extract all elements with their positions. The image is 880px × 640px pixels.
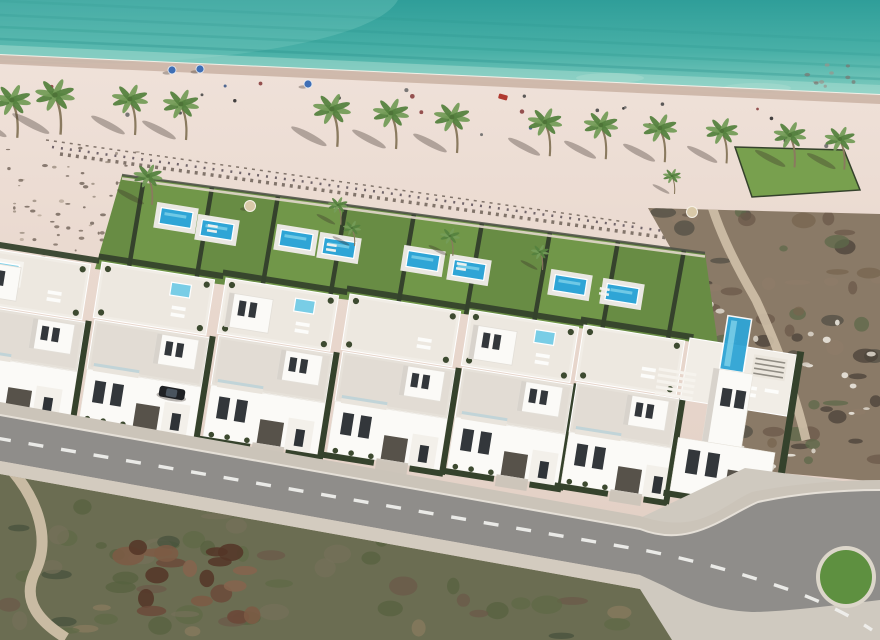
beach-person xyxy=(480,133,483,136)
scrub-blob xyxy=(96,542,107,549)
scrub-blob xyxy=(511,597,530,609)
scrub-blob xyxy=(315,558,336,577)
palm-crown-center xyxy=(450,115,455,120)
rooftop-jacuzzi xyxy=(294,298,316,314)
scrub-blob xyxy=(486,602,508,619)
palm-crown-center xyxy=(128,97,133,102)
beach-person xyxy=(770,117,774,121)
terrain-blob xyxy=(848,281,857,294)
beach-person xyxy=(520,109,524,113)
white-rock xyxy=(811,449,815,454)
ruin-patch xyxy=(199,570,214,587)
terrain-blob xyxy=(779,245,787,251)
dune-speckle xyxy=(7,167,10,170)
scrub-blob xyxy=(469,610,488,618)
ruin-patch xyxy=(137,606,167,616)
beach-person xyxy=(410,94,415,99)
scrub-blob xyxy=(607,606,631,619)
shore-pebble xyxy=(819,80,824,84)
dune-speckle xyxy=(100,231,105,235)
terrain-blob xyxy=(805,439,820,449)
scrub-blob xyxy=(604,618,630,630)
palm-crown-center xyxy=(389,111,394,116)
scrub-blob xyxy=(531,596,562,614)
palm-crown-center xyxy=(720,129,724,133)
white-rock xyxy=(835,320,840,326)
palm-crown-center xyxy=(539,251,541,253)
terrain-blob xyxy=(825,235,850,248)
beach-person xyxy=(404,88,408,92)
scrub-blob xyxy=(389,576,417,595)
dune-speckle xyxy=(24,206,29,208)
beach-person xyxy=(419,110,423,114)
garage-door xyxy=(615,466,642,493)
dune-speckle xyxy=(30,209,35,212)
dune-speckle xyxy=(79,230,84,232)
ruin-patch xyxy=(224,580,247,592)
white-rock xyxy=(850,384,857,389)
palm-crown-center xyxy=(658,126,663,131)
dune-speckle xyxy=(116,181,119,184)
dune-speckle xyxy=(92,196,95,198)
ruin-patch xyxy=(233,566,257,575)
garage-door xyxy=(501,451,528,478)
terrain-blob xyxy=(710,258,731,264)
scrub-blob xyxy=(257,550,285,560)
aerial-render-photo xyxy=(0,0,880,640)
beach-person xyxy=(259,82,263,86)
dune-speckle xyxy=(91,183,94,185)
beach-person xyxy=(596,109,600,113)
terrain-blob xyxy=(674,220,695,235)
beach-person xyxy=(233,99,236,102)
scrub-blob xyxy=(362,552,381,565)
dune-speckle xyxy=(75,249,77,251)
dune-speckle xyxy=(37,214,41,216)
palm-crown-center xyxy=(337,204,340,207)
scrub-blob xyxy=(112,572,138,585)
dune-speckle xyxy=(109,195,113,197)
dune-speckle xyxy=(83,185,88,188)
beach-umbrella xyxy=(196,65,204,73)
ruin-patch xyxy=(191,596,213,607)
ruin-patch xyxy=(154,545,178,562)
dune-speckle xyxy=(98,232,100,235)
scrub-blob xyxy=(171,611,199,617)
scrub-blob xyxy=(48,525,69,544)
terrain-blob xyxy=(848,439,862,444)
garden-parasol xyxy=(687,207,698,218)
beach-person xyxy=(756,108,759,111)
dune-speckle xyxy=(18,185,20,186)
white-rock xyxy=(867,352,876,357)
dune-speckle xyxy=(78,147,82,150)
dune-speckle xyxy=(89,225,92,227)
terrain-blob xyxy=(820,406,833,412)
beach-person xyxy=(125,113,129,117)
beach-person xyxy=(523,94,526,97)
dune-speckle xyxy=(6,149,10,150)
dune-speckle xyxy=(57,234,60,236)
palm-crown-center xyxy=(146,174,150,178)
dune-speckle xyxy=(100,213,106,216)
scrub-blob xyxy=(185,626,201,636)
dune-speckle xyxy=(32,200,36,203)
dune-speckle xyxy=(20,232,25,234)
palm-crown-center xyxy=(543,120,548,125)
dune-speckle xyxy=(50,221,55,223)
scrub-blob xyxy=(265,579,293,587)
dune-speckle xyxy=(59,199,64,203)
palm-crown-center xyxy=(351,227,353,229)
dune-speckle xyxy=(32,238,36,241)
ruin-patch xyxy=(138,589,154,608)
scrub-blob xyxy=(94,614,118,625)
scrub-blob xyxy=(226,518,247,533)
palm-crown-center xyxy=(671,175,673,177)
white-rock xyxy=(841,372,848,378)
dune-speckle xyxy=(135,151,140,153)
scrub-blob xyxy=(457,594,470,607)
terrain-blob xyxy=(792,333,803,341)
dune-speckle xyxy=(81,172,85,174)
white-rock xyxy=(823,337,831,343)
palm-crown-center xyxy=(329,106,334,111)
palm-crown-center xyxy=(599,123,604,128)
roundabout-island xyxy=(820,550,872,604)
white-rock xyxy=(802,362,810,366)
garage-door xyxy=(257,419,284,446)
palm-crown-center xyxy=(179,102,184,107)
ruin-patch xyxy=(183,560,197,577)
scene-canvas xyxy=(0,0,880,640)
terrain-blob xyxy=(738,212,756,226)
ruin-patch xyxy=(129,540,147,555)
terrain-blob xyxy=(821,315,844,326)
scrub-blob xyxy=(93,605,111,611)
scrub-blob xyxy=(378,601,403,617)
palm-crown-center xyxy=(9,97,14,102)
dune-speckle xyxy=(13,206,16,209)
shore-pebble xyxy=(824,85,827,88)
beach-person xyxy=(661,102,665,106)
dune-speckle xyxy=(52,166,57,169)
rooftop-jacuzzi xyxy=(170,282,192,298)
terrain-blob xyxy=(785,280,811,285)
scrub-blob xyxy=(447,578,459,595)
terrain-blob xyxy=(854,317,869,332)
dune-speckle xyxy=(13,203,16,205)
terrain-blob xyxy=(792,213,816,228)
dune-speckle xyxy=(18,179,23,182)
dune-speckle xyxy=(79,182,84,185)
shore-pebble xyxy=(829,71,833,74)
dune-speckle xyxy=(115,152,118,155)
palm-crown-center xyxy=(838,137,842,141)
white-rock xyxy=(863,407,870,410)
dune-speckle xyxy=(42,164,48,167)
terrain-blob xyxy=(826,269,848,275)
dune-speckle xyxy=(13,210,16,212)
scrub-blob xyxy=(148,617,171,635)
dune-speckle xyxy=(66,226,70,229)
scrub-blob xyxy=(549,633,575,639)
white-rock xyxy=(753,336,758,342)
beach-person xyxy=(201,93,204,96)
scrub-blob xyxy=(73,499,91,514)
shore-pebble xyxy=(845,76,850,79)
terrain-blob xyxy=(804,456,813,464)
terrain-blob xyxy=(650,207,676,218)
scrub-blob xyxy=(412,619,426,636)
terrain-blob xyxy=(822,211,834,225)
terrain-blob xyxy=(849,373,867,379)
dune-speckle xyxy=(56,213,61,216)
beach-umbrella xyxy=(168,66,176,74)
ruin-patch xyxy=(145,567,168,583)
rooftop-jacuzzi xyxy=(534,330,556,346)
terrain-blob xyxy=(767,438,777,448)
white-rock xyxy=(849,412,855,415)
terrain-blob xyxy=(823,400,848,405)
dune-speckle xyxy=(65,203,70,205)
scrub-blob xyxy=(42,560,62,574)
terrain-blob xyxy=(762,277,776,290)
terrain-blob xyxy=(808,400,819,409)
garden-parasol xyxy=(245,201,256,212)
dune-speckle xyxy=(67,166,70,168)
terrain-blob xyxy=(793,307,804,316)
white-rock xyxy=(808,332,814,337)
scrub-blob xyxy=(8,525,29,532)
dune-speckle xyxy=(79,237,85,240)
scrub-blob xyxy=(12,611,27,630)
shore-pebble xyxy=(804,73,810,76)
shore-pebble xyxy=(852,80,856,84)
dune-speckle xyxy=(105,161,110,163)
white-rock xyxy=(715,309,724,314)
terrain-blob xyxy=(834,230,855,236)
dune-speckle xyxy=(66,175,70,177)
dune-speckle xyxy=(53,243,58,245)
dune-speckle xyxy=(83,206,86,208)
shore-pebble xyxy=(846,64,850,67)
beach-person xyxy=(624,106,627,109)
ruin-patch xyxy=(208,557,232,566)
palm-crown-center xyxy=(449,235,452,238)
terrain-blob xyxy=(824,277,838,286)
terrain-blob xyxy=(828,410,846,423)
scrub-blob xyxy=(259,604,289,620)
dune-speckle xyxy=(20,238,24,241)
ruin-patch xyxy=(244,606,261,624)
terrain-blob xyxy=(721,287,743,295)
beach-umbrella xyxy=(304,80,312,88)
shore-pebble xyxy=(825,63,830,66)
beach-lawn-patch xyxy=(735,147,860,197)
garage-door xyxy=(381,435,408,462)
dune-speckle xyxy=(124,165,127,167)
dune-speckle xyxy=(54,225,59,228)
dune-speckle xyxy=(90,222,94,225)
terrain-blob xyxy=(763,427,785,437)
beach-person xyxy=(224,85,227,88)
shore-pebble xyxy=(814,82,819,85)
palm-crown-center xyxy=(52,92,57,97)
palm-crown-center xyxy=(788,133,792,137)
